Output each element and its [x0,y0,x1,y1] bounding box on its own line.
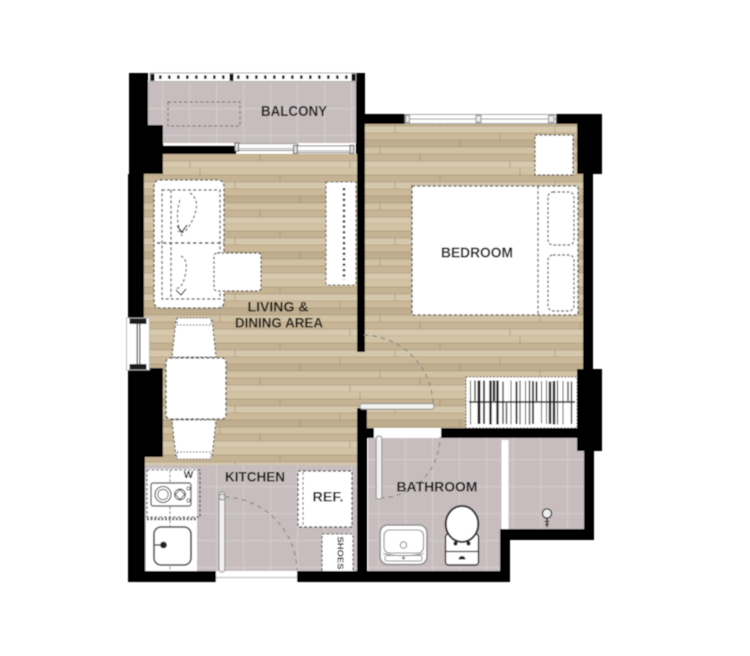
svg-text:BALCONY: BALCONY [261,103,327,120]
svg-text:KITCHEN: KITCHEN [225,469,285,485]
svg-text:SHOES: SHOES [336,537,346,570]
svg-text:REF.: REF. [313,489,344,505]
svg-text:BATHROOM: BATHROOM [397,479,478,495]
svg-text:BEDROOM: BEDROOM [441,245,513,262]
svg-text:W: W [184,470,194,481]
svg-text:LIVING &: LIVING & [248,299,309,315]
svg-text:DINING AREA: DINING AREA [235,315,323,331]
